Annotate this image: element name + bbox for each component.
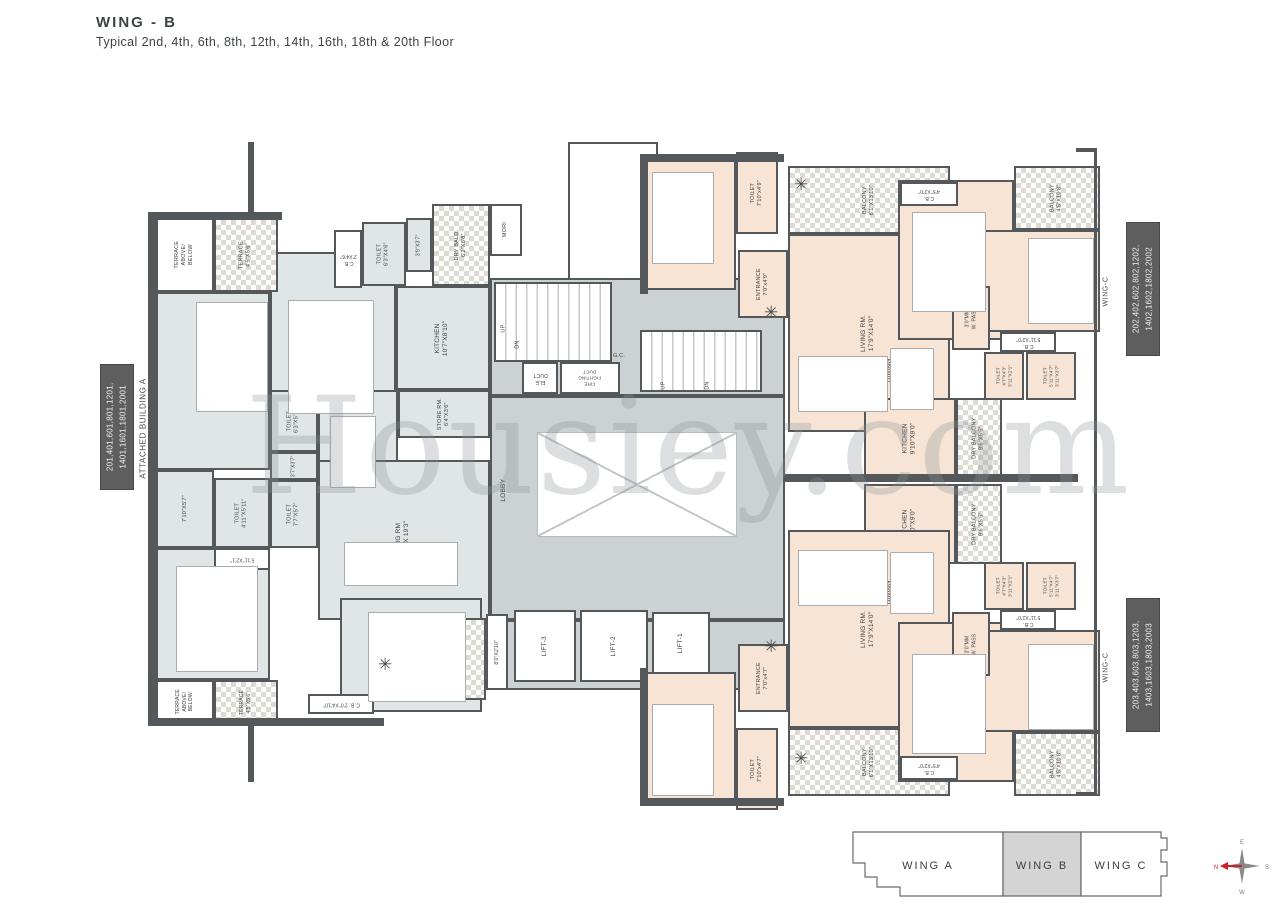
wall-segment-4 xyxy=(640,154,784,162)
gc: G.C. xyxy=(608,350,630,364)
entrance-bottom-label: ENTRANCE 7'0"x4'7" xyxy=(756,662,770,694)
open-cutout xyxy=(537,432,737,537)
bed xyxy=(196,302,268,412)
terrace-top-label: TERRACE 4'5"X5'6" xyxy=(239,241,253,269)
plan-header: WING - B Typical 2nd, 4th, 6th, 8th, 12t… xyxy=(96,14,454,49)
bed xyxy=(652,172,714,264)
cb-bedroom2-bottom: C.B. 4'5"X2'0" xyxy=(900,756,958,780)
dry-balcony-bottom-label: DRY BALCONY 9'6"X5'5" xyxy=(972,503,986,544)
entrance-top: ENTRANCE 7'0"x4'9" xyxy=(738,250,788,318)
stair1-up-label: UP xyxy=(500,325,507,333)
potted-plant-icon: ✳ xyxy=(764,638,778,655)
wall-segment-7 xyxy=(640,798,784,806)
compass: E N S W xyxy=(1212,836,1272,901)
kitchen-label: KITCHEN 10'7"X8'10" xyxy=(435,320,452,355)
wall-segment-3 xyxy=(640,154,648,294)
ledge-left-label: 8'0"X2'10" xyxy=(494,640,501,665)
toilet-a-top: TOILET 4'7"X4'3" 3'11"X2'1" xyxy=(984,352,1024,400)
dry-bald-label: DRY BALD. 6'2"X6'8" xyxy=(454,230,468,261)
balcony1-bottom-label: BALCONY 6'1"X13'10" xyxy=(862,747,876,777)
fire-fighting-duct: FIRE FIGHTING DUCT xyxy=(560,362,620,394)
stair1-dn-label: DN xyxy=(514,341,521,349)
cb-bedroom3-top-label: C.B. 5'11"X2'0" xyxy=(1016,336,1040,349)
terrace-above-below-top-label: TERRACE ABOVE/ BELOW xyxy=(174,241,195,269)
cb-kids: C.B. 2'X4'6" xyxy=(334,230,362,288)
cb-bedroom3-bottom-label: C.B. 5'11"X2'0" xyxy=(1016,614,1040,627)
dining-table xyxy=(890,552,934,614)
dry-balcony-top-label: DRY BALCONY 9'6"X5'5" xyxy=(972,417,986,458)
wing-c-bottom-label: WING-C xyxy=(1100,624,1112,710)
stair2-dn: DN xyxy=(700,374,716,398)
attached-building-a-label: ATTACHED BUILDING A xyxy=(136,358,150,498)
dining-table xyxy=(890,348,934,410)
kitchen-top-label: KITCHEN 9'10"X9'0" xyxy=(902,422,919,454)
wall-segment-6 xyxy=(640,668,648,806)
right-top-unit-numbers-box: 202,402,602,802,1202, 1402,1602,1802,200… xyxy=(1126,222,1160,356)
wall-segment-2 xyxy=(148,718,384,726)
toilet-b-bottom: TOILET 5'11"X4'7" 3'11"X3'7" xyxy=(1026,562,1076,610)
bed xyxy=(176,566,258,672)
toilet-guest: TOILET 7'7"X5'7" xyxy=(270,480,318,548)
lobby: LOBBY xyxy=(494,460,514,520)
wall-segment-10 xyxy=(1094,148,1097,796)
toilet-a-bottom: TOILET 4'7"X4'3" 3'11"X2'1" xyxy=(984,562,1024,610)
wide-pass-bottom-label: 3'0"MM W. PASS xyxy=(965,633,978,655)
left-unit-numbers-box: 201,401,601,801,1201, 1401,1601,1801,200… xyxy=(100,364,134,490)
terrace-top: TERRACE 4'5"X5'6" xyxy=(214,218,278,292)
toilet1-bottom-label: TOILET 7'10"x4'7" xyxy=(750,756,764,782)
lobby-label: LOBBY xyxy=(500,479,508,502)
right-top-unit-numbers: 202,402,602,802,1202, 1402,1602,1802,200… xyxy=(1130,245,1156,334)
kitchen: KITCHEN 10'7"X8'10" xyxy=(396,286,490,390)
compass-east: E xyxy=(1240,840,1244,846)
ledge-left: 8'0"X2'10" xyxy=(486,614,508,690)
toilet-a-bottom-label: TOILET 4'7"X4'3" 3'11"X2'1" xyxy=(995,575,1013,597)
wing-c-top-label: WING-C xyxy=(1100,248,1112,334)
stair2-dn-label: DN xyxy=(704,382,711,390)
sofa xyxy=(798,550,888,606)
toilet-a-top-label: TOILET 4'7"X4'3" 3'11"X2'1" xyxy=(995,365,1013,387)
potted-plant-icon: ✳ xyxy=(794,176,808,193)
toilet-master: TOILET 4'11"X5'11" xyxy=(214,478,270,548)
bed xyxy=(288,300,374,414)
keyplan-wing-c-label[interactable]: WING C xyxy=(1095,860,1148,872)
right-bottom-unit-numbers-box: 203,403,603,803,1203, 1403,1603,1803,200… xyxy=(1126,598,1160,732)
pass-kids-label: 3'9"X3'7" xyxy=(416,234,423,256)
pass-toilets: 3'7"X3'7" xyxy=(270,452,318,480)
bed xyxy=(912,654,986,754)
pass-kids: 3'9"X3'7" xyxy=(406,218,432,272)
balcony2-bottom-label: BALCONY 4'5"X10'8" xyxy=(1050,750,1064,778)
lift-2: LIFT-2 xyxy=(580,610,648,682)
toilet1-top-label: TOILET 7'10"x4'9" xyxy=(750,180,764,206)
balcony1-top-label: BALCONY 6'1"X13'10" xyxy=(862,185,876,215)
compass-icon: E N S W xyxy=(1212,836,1272,896)
toilet1-top: TOILET 7'10"x4'9" xyxy=(736,152,778,234)
wall-segment-12 xyxy=(1076,792,1096,796)
toilet-b-top-label: TOILET 5'11"X4'7" 3'11"X3'7" xyxy=(1042,365,1060,387)
dry-balcony-top: DRY BALCONY 9'6"X5'5" xyxy=(956,398,1002,478)
store-rm-label: STORE RM. 6'4"X3'6" xyxy=(437,398,451,430)
ele-duct-label: ELE DUCT xyxy=(533,372,548,385)
dry-balcony-bottom: DRY BALCONY 9'6"X5'5" xyxy=(956,484,1002,564)
keyplan-wing-a-label[interactable]: WING A xyxy=(902,860,954,872)
entrance-top-label: ENTRANCE 7'0"x4'9" xyxy=(756,268,770,300)
lift-1-label: LIFT-1 xyxy=(677,633,685,653)
lift-1: LIFT-1 xyxy=(652,612,710,674)
left-unit-numbers: 201,401,601,801,1201, 1401,1601,1801,200… xyxy=(104,383,130,472)
stair2-up: UP xyxy=(656,374,672,398)
potted-plant-icon: ✳ xyxy=(764,304,778,321)
compass-south: S xyxy=(1265,865,1269,871)
bed xyxy=(1028,238,1094,324)
wall-segment-1 xyxy=(148,212,282,220)
store-rm: STORE RM. 6'4"X3'6" xyxy=(398,390,490,438)
keyplan-wing-b-label[interactable]: WING B xyxy=(1016,860,1068,872)
wall-segment-8 xyxy=(248,142,254,214)
terrace-bottom-label: TERRACE 4'5"X5'6" xyxy=(239,689,252,714)
ele-duct: ELE DUCT xyxy=(522,362,558,394)
pass-toilets-label: 3'7"X3'7" xyxy=(291,455,298,477)
wall-segment-9 xyxy=(248,724,254,782)
sofa xyxy=(344,542,458,586)
fire-fighting-duct-label: FIRE FIGHTING DUCT xyxy=(578,369,601,387)
lift-3-label: LIFT-3 xyxy=(541,636,549,656)
cb-bedroom2-bottom-label: C.B. 4'5"X2'0" xyxy=(918,762,940,775)
bed xyxy=(1028,644,1094,730)
stair1-dn: DN xyxy=(510,332,526,358)
page-title: WING - B xyxy=(96,14,454,31)
toilet-guest-label: TOILET 7'7"X5'7" xyxy=(287,502,301,526)
compass-west: W xyxy=(1239,890,1245,896)
page-subtitle: Typical 2nd, 4th, 6th, 8th, 12th, 14th, … xyxy=(96,35,454,49)
balcony2-top-label: BALCONY 4'5"X10'8" xyxy=(1050,184,1064,212)
terrace-above-below-bottom-label: TERRACE ABOVE/ BELOW xyxy=(175,689,195,714)
cb-master-label: 5'11"X2'1" xyxy=(230,556,254,563)
key-plan-svg: WING A WING B WING C xyxy=(845,830,1175,902)
stair2-up-label: UP xyxy=(660,382,667,390)
dining-table xyxy=(330,416,376,488)
lift-3: LIFT-3 xyxy=(514,610,576,682)
bed xyxy=(652,704,714,796)
mori: MORI xyxy=(490,204,522,256)
pass-master-label: 7'10"X5'7" xyxy=(181,496,188,523)
toilet-kids-label: TOILET 6'3"X4'6" xyxy=(377,242,391,266)
balcony2-bottom: BALCONY 4'5"X10'8" xyxy=(1014,732,1100,796)
cb-bedroom2-top: C.B. 4'5"X2'0" xyxy=(900,182,958,206)
terrace-above-below-top: TERRACE ABOVE/ BELOW xyxy=(156,218,214,292)
pass-master: 7'10"X5'7" xyxy=(156,470,214,548)
key-plan: WING A WING B WING C xyxy=(845,830,1175,907)
compass-north: N xyxy=(1214,865,1218,871)
dry-bald: DRY BALD. 6'2"X6'8" xyxy=(432,204,490,286)
potted-plant-icon: ✳ xyxy=(378,656,392,673)
toilet-kids: TOILET 6'3"X4'6" xyxy=(362,222,406,286)
sofa xyxy=(798,356,888,412)
lift-2-label: LIFT-2 xyxy=(610,636,618,656)
toilet-b-bottom-label: TOILET 5'11"X4'7" 3'11"X3'7" xyxy=(1042,575,1060,597)
wall-segment-5 xyxy=(784,474,1078,482)
toilet-master-label: TOILET 4'11"X5'11" xyxy=(235,498,249,527)
cb-guest-label: C.B. 2'0"X4'10" xyxy=(323,701,360,708)
bed xyxy=(912,212,986,312)
wall-segment-11 xyxy=(1076,148,1096,152)
cb-bedroom3-bottom: C.B. 5'11"X2'0" xyxy=(1000,610,1056,630)
cb-bedroom3-top: C.B. 5'11"X2'0" xyxy=(1000,332,1056,352)
cb-guest: C.B. 2'0"X4'10" xyxy=(308,694,374,714)
potted-plant-icon: ✳ xyxy=(794,750,808,767)
gc-label: G.C. xyxy=(613,353,625,360)
entrance-bottom: ENTRANCE 7'0"x4'7" xyxy=(738,644,788,712)
toilet-b-top: TOILET 5'11"X4'7" 3'11"X3'7" xyxy=(1026,352,1076,400)
cb-bedroom2-top-label: C.B. 4'5"X2'0" xyxy=(918,188,940,201)
mori-label: MORI xyxy=(502,222,509,237)
balcony2-top: BALCONY 4'5"X10'8" xyxy=(1014,166,1100,230)
cb-kids-label: C.B. 2'X4'6" xyxy=(340,253,357,266)
right-bottom-unit-numbers: 203,403,603,803,1203, 1403,1603,1803,200… xyxy=(1130,621,1156,710)
